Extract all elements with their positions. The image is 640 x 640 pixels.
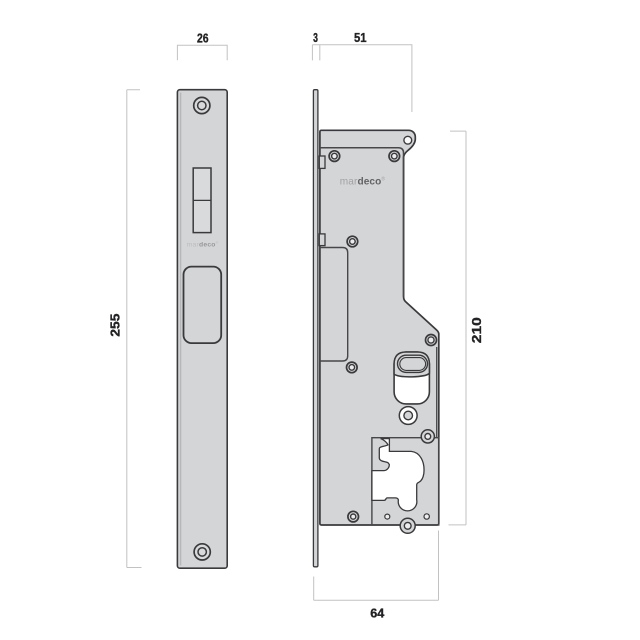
svg-text:64: 64 — [370, 606, 385, 621]
svg-text:mardeco®: mardeco® — [340, 176, 386, 188]
svg-text:26: 26 — [197, 30, 209, 45]
svg-text:3: 3 — [313, 30, 318, 45]
svg-text:255: 255 — [107, 314, 122, 337]
svg-text:mardeco®: mardeco® — [187, 241, 219, 249]
svg-text:51: 51 — [354, 30, 367, 45]
svg-text:210: 210 — [469, 317, 484, 343]
